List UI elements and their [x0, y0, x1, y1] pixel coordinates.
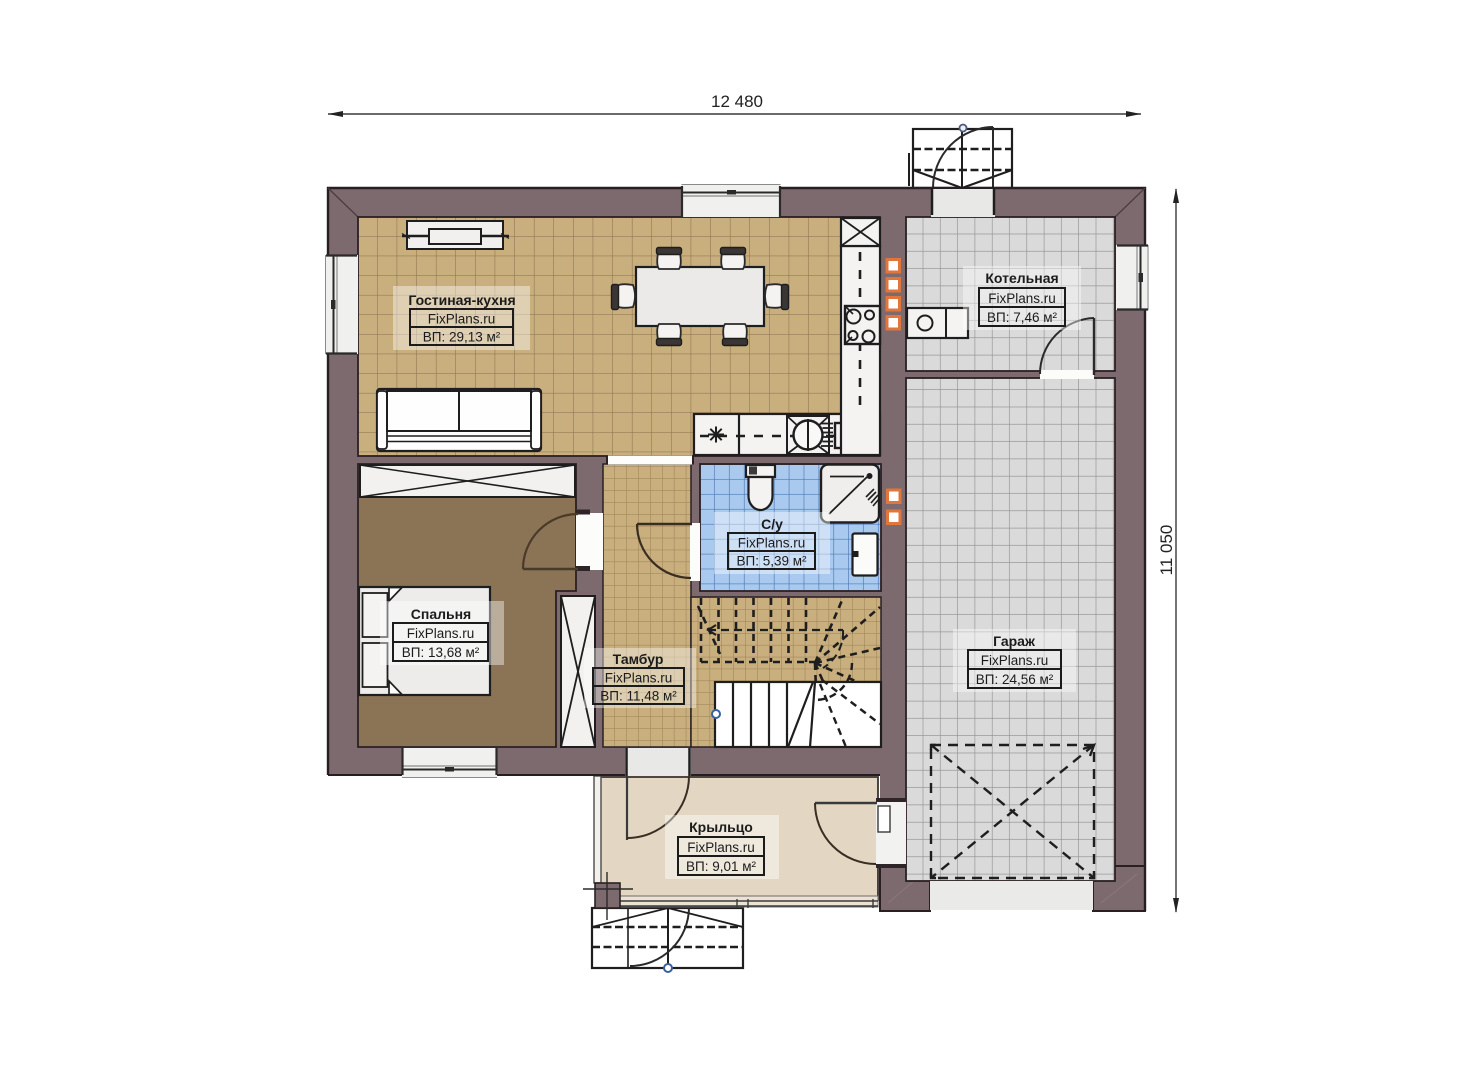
svg-text:ВП: 7,46 м²: ВП: 7,46 м² [987, 310, 1058, 325]
svg-text:Гостиная-кухня: Гостиная-кухня [408, 292, 515, 308]
svg-text:12 480: 12 480 [711, 92, 763, 111]
svg-text:Котельная: Котельная [985, 270, 1058, 286]
svg-text:FixPlans.ru: FixPlans.ru [738, 536, 806, 551]
svg-text:Крыльцо: Крыльцо [689, 819, 753, 835]
svg-text:ВП: 5,39 м²: ВП: 5,39 м² [736, 554, 807, 569]
svg-text:Гараж: Гараж [993, 633, 1036, 649]
svg-text:С/у: С/у [761, 516, 783, 532]
svg-text:ВП: 9,01 м²: ВП: 9,01 м² [686, 859, 757, 874]
svg-text:Тамбур: Тамбур [613, 651, 664, 667]
svg-text:FixPlans.ru: FixPlans.ru [428, 312, 496, 327]
svg-text:ВП: 24,56 м²: ВП: 24,56 м² [976, 672, 1054, 687]
svg-text:FixPlans.ru: FixPlans.ru [407, 626, 475, 641]
svg-text:FixPlans.ru: FixPlans.ru [988, 291, 1056, 306]
svg-text:Спальня: Спальня [411, 606, 471, 622]
svg-text:ВП: 13,68 м²: ВП: 13,68 м² [402, 645, 480, 660]
svg-text:ВП: 29,13 м²: ВП: 29,13 м² [423, 330, 501, 345]
svg-text:FixPlans.ru: FixPlans.ru [687, 840, 755, 855]
svg-text:ВП: 11,48 м²: ВП: 11,48 м² [600, 689, 677, 704]
svg-text:FixPlans.ru: FixPlans.ru [605, 671, 673, 686]
svg-text:FixPlans.ru: FixPlans.ru [981, 653, 1049, 668]
svg-text:11 050: 11 050 [1157, 525, 1176, 576]
